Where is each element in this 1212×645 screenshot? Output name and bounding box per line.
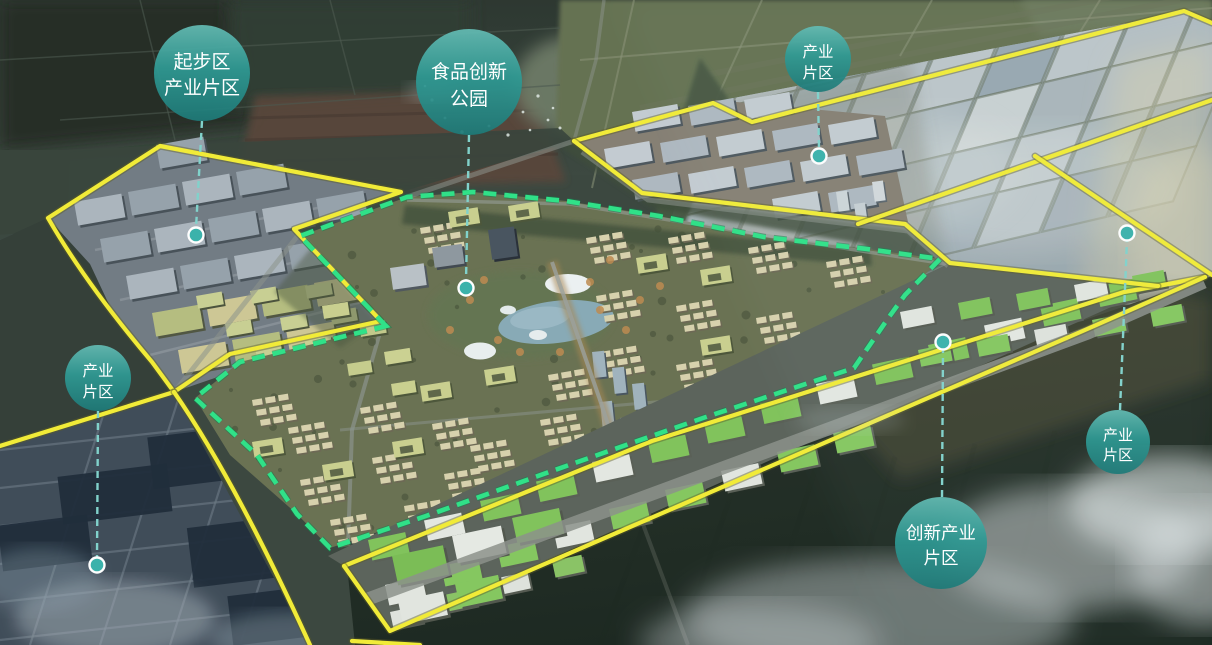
svg-text:产业: 产业 <box>1103 427 1133 444</box>
svg-text:产业片区: 产业片区 <box>164 77 240 99</box>
svg-text:起步区: 起步区 <box>173 51 230 73</box>
svg-text:片区: 片区 <box>924 548 959 568</box>
svg-text:公园: 公园 <box>450 89 488 110</box>
svg-text:片区: 片区 <box>802 64 833 82</box>
svg-text:片区: 片区 <box>1103 447 1133 464</box>
svg-text:食品创新: 食品创新 <box>431 61 507 83</box>
svg-text:产业: 产业 <box>82 362 113 380</box>
svg-text:产业: 产业 <box>802 43 833 61</box>
svg-text:创新产业: 创新产业 <box>906 523 976 543</box>
svg-text:片区: 片区 <box>82 383 113 401</box>
